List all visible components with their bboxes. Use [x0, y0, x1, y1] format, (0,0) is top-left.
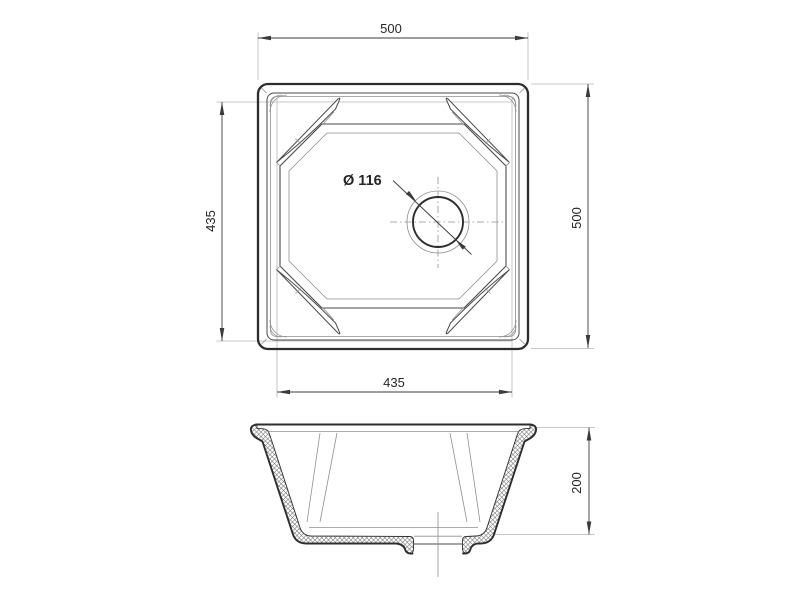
dim-overall-depth: 500	[569, 84, 588, 348]
overall-depth-label: 500	[569, 207, 584, 229]
sink-rim-line-1	[267, 93, 519, 340]
bowl-inner-octagon	[289, 133, 497, 299]
dim-bowl-width: 435	[277, 375, 512, 392]
drain: Ø 116	[343, 173, 503, 268]
drawing-svg: Ø 116 500 500	[0, 0, 800, 600]
drain-arrow-1	[406, 191, 416, 201]
section-wall-left	[251, 425, 413, 554]
bowl-height-label: 200	[569, 472, 584, 494]
bowl-width-label: 435	[383, 375, 405, 390]
sink-technical-drawing: Ø 116 500 500	[0, 0, 800, 600]
section-outer-profile	[251, 425, 536, 554]
section-interior-lines	[269, 432, 519, 578]
dimensions: 500 500 435 435 200	[203, 21, 589, 535]
dim-bowl-length: 435	[203, 102, 222, 341]
dim-bowl-height: 200	[569, 428, 589, 535]
plan-view: Ø 116	[258, 84, 528, 349]
dim-overall-width: 500	[258, 21, 528, 38]
section-view	[251, 425, 536, 578]
bowl-length-label: 435	[203, 210, 218, 232]
bowl-opening-octagon	[280, 124, 506, 308]
drain-diameter-label: Ø 116	[343, 173, 382, 189]
overall-width-label: 500	[380, 21, 402, 36]
corner-detail	[262, 88, 340, 167]
